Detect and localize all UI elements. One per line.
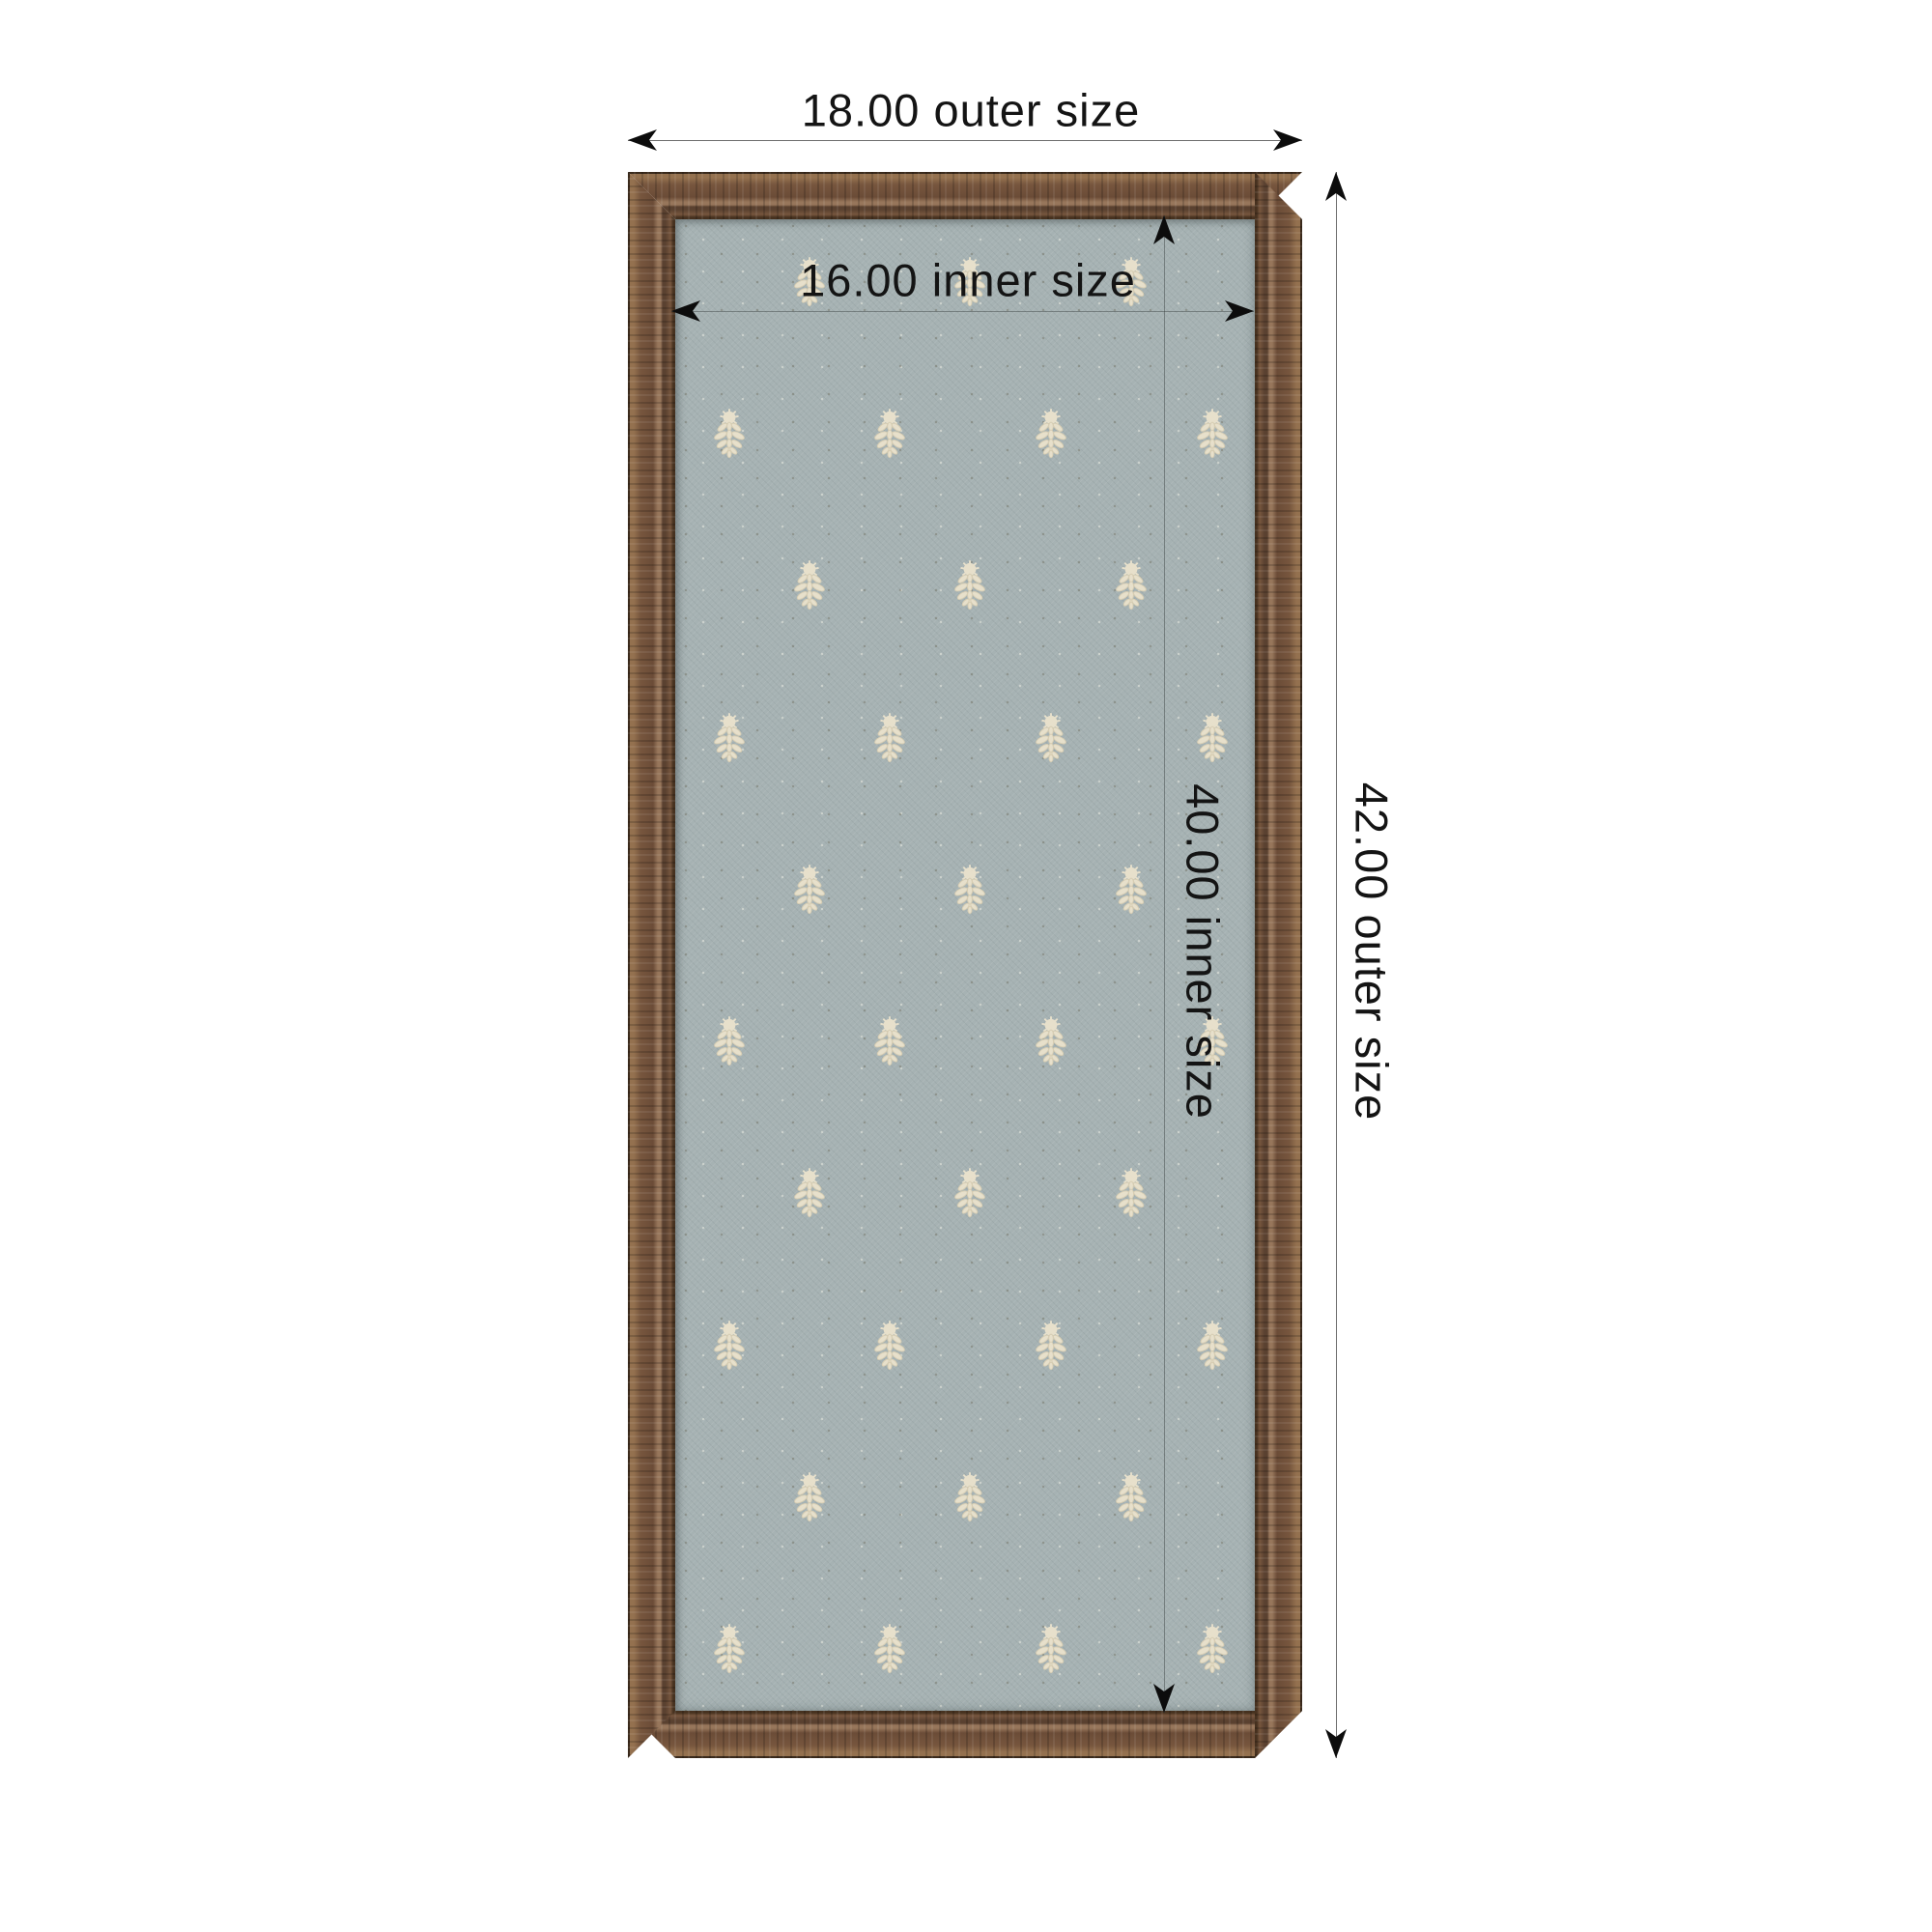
fabric-panel bbox=[675, 219, 1255, 1711]
outer-height-label: 42.00 outer size bbox=[1350, 782, 1395, 1121]
fabric-sprig-motif bbox=[869, 1623, 910, 1675]
fabric-sprig-motif bbox=[1111, 864, 1151, 916]
fabric-sprig-motif bbox=[709, 1015, 750, 1067]
inner-width-label: 16.00 inner size bbox=[800, 258, 1136, 303]
fabric-sprig-motif bbox=[709, 712, 750, 764]
dimension-line-inner-height bbox=[1164, 215, 1165, 1713]
fabric-sprig-motif bbox=[1192, 408, 1233, 460]
fabric-sprig-motif bbox=[1192, 712, 1233, 764]
inner-height-label: 40.00 inner size bbox=[1180, 783, 1226, 1120]
fabric-sprig-motif bbox=[1031, 712, 1071, 764]
fabric-sprig-motif bbox=[709, 1623, 750, 1675]
arrowhead-down-icon bbox=[1153, 1684, 1175, 1713]
fabric-sprig-motif bbox=[950, 1471, 990, 1523]
arrowhead-up-icon bbox=[1153, 215, 1175, 244]
arrowhead-down-icon bbox=[1325, 1729, 1347, 1758]
fabric-sprig-motif bbox=[950, 559, 990, 611]
fabric-sprig-motif bbox=[789, 1471, 830, 1523]
fabric-sprig-motif bbox=[789, 1167, 830, 1219]
arrowhead-up-icon bbox=[1325, 172, 1347, 201]
arrowhead-left-icon bbox=[671, 300, 700, 322]
fabric-sprig-motif bbox=[789, 864, 830, 916]
frame-top-rail bbox=[628, 172, 1302, 219]
fabric-sprig-motif bbox=[1031, 1320, 1071, 1372]
fabric-sprig-motif bbox=[869, 1320, 910, 1372]
fabric-sprig-motif bbox=[1031, 408, 1071, 460]
arrowhead-right-icon bbox=[1273, 129, 1302, 151]
arrowhead-left-icon bbox=[628, 129, 657, 151]
frame-right-rail bbox=[1255, 172, 1302, 1758]
dimension-line-outer-height bbox=[1336, 172, 1337, 1758]
outer-width-label: 18.00 outer size bbox=[802, 88, 1140, 133]
fabric-sprig-motif bbox=[1111, 1167, 1151, 1219]
fabric-sprig-motif bbox=[1192, 1623, 1233, 1675]
fabric-sprig-motif bbox=[709, 408, 750, 460]
dimension-line-outer-width bbox=[628, 140, 1302, 141]
frame-bottom-rail bbox=[628, 1711, 1302, 1758]
fabric-sprig-motif bbox=[1192, 1320, 1233, 1372]
fabric-sprig-motif bbox=[709, 1320, 750, 1372]
fabric-sprig-motif bbox=[1111, 559, 1151, 611]
fabric-sprig-motif bbox=[950, 1167, 990, 1219]
dimension-line-inner-width bbox=[671, 311, 1254, 312]
fabric-sprig-motif bbox=[1031, 1015, 1071, 1067]
fabric-sprig-motif bbox=[1031, 1623, 1071, 1675]
frame-left-rail bbox=[628, 172, 675, 1758]
arrowhead-right-icon bbox=[1225, 300, 1254, 322]
fabric-sprig-motif bbox=[950, 864, 990, 916]
product-dimension-diagram: 18.00 outer size 16.00 inner size 42.00 … bbox=[0, 0, 1932, 1932]
fabric-sprig-motif bbox=[789, 559, 830, 611]
fabric-sprig-motif bbox=[869, 1015, 910, 1067]
fabric-sprig-motif bbox=[869, 408, 910, 460]
fabric-sprig-motif bbox=[1111, 1471, 1151, 1523]
fabric-sprig-motif bbox=[869, 712, 910, 764]
